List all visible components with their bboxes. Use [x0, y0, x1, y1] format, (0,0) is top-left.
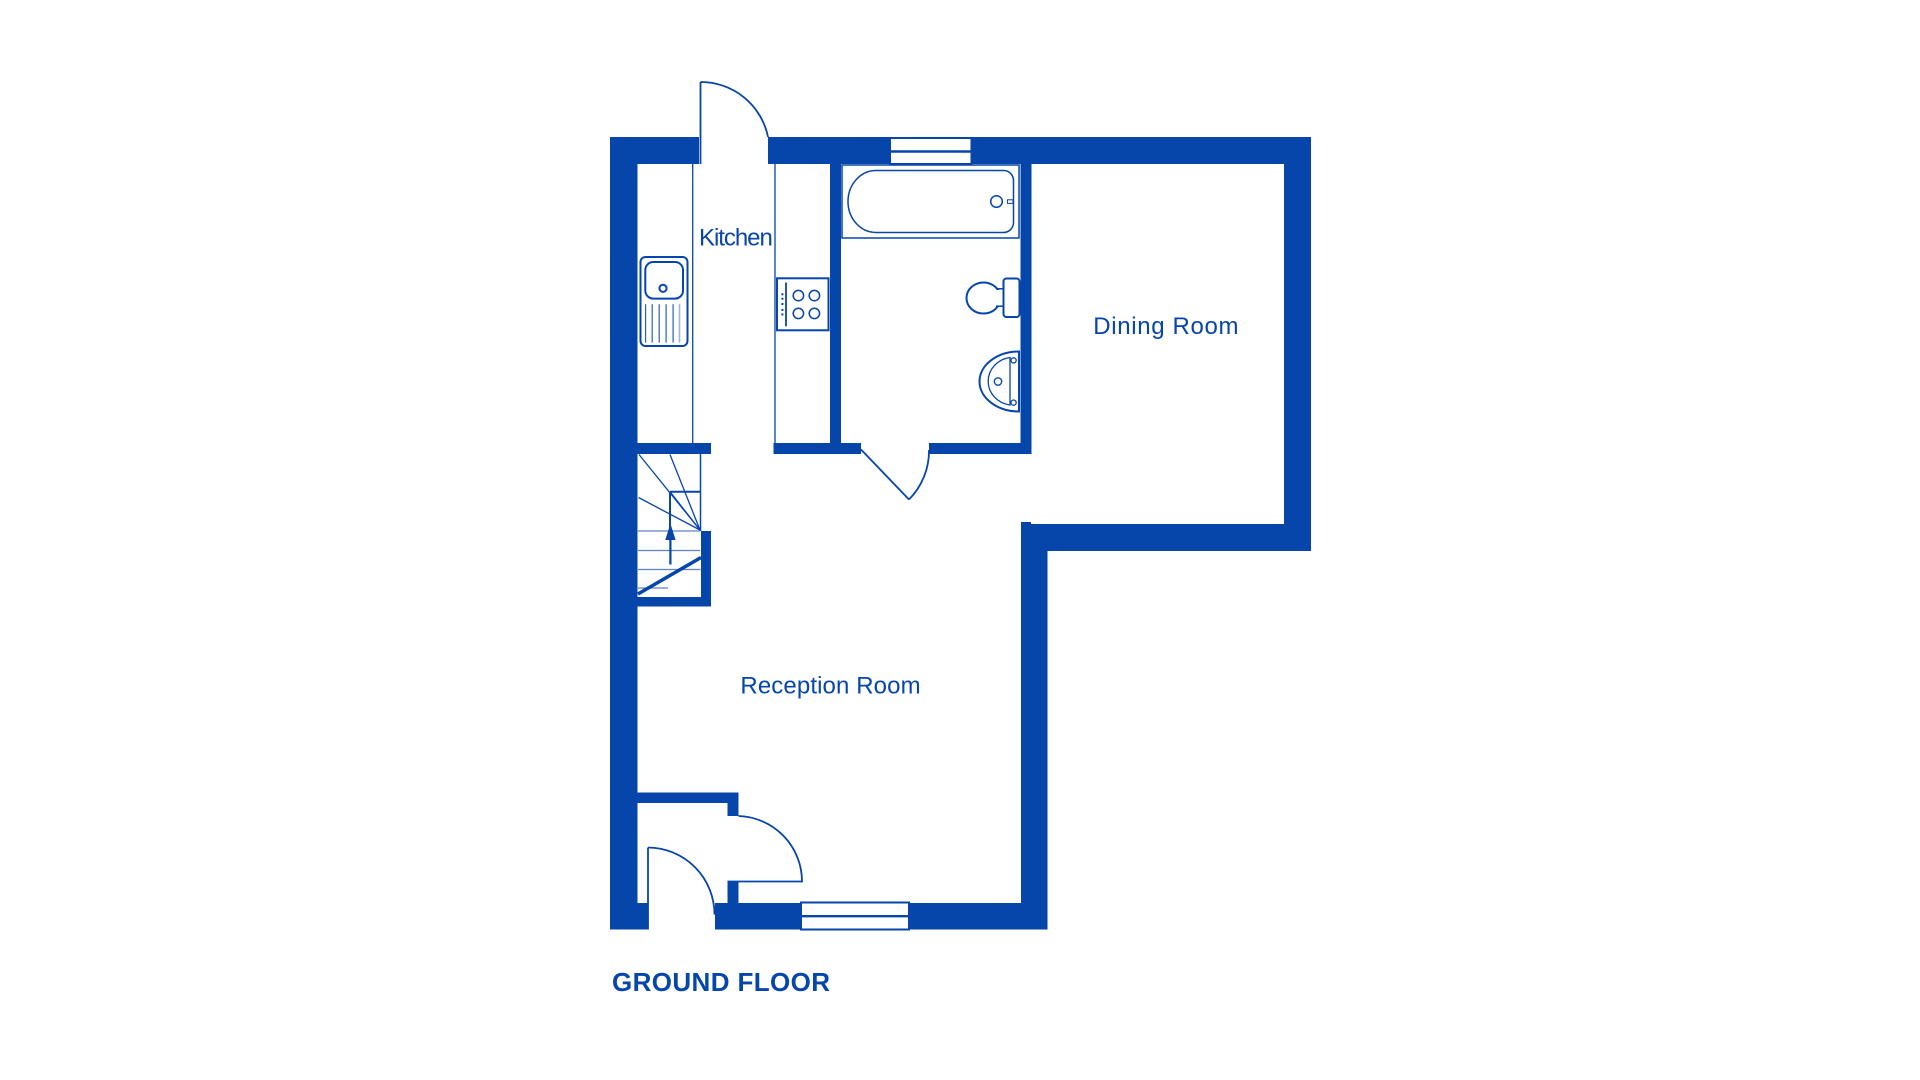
svg-text:GROUND FLOOR: GROUND FLOOR [612, 967, 830, 997]
svg-text:Kitchen: Kitchen [699, 225, 773, 252]
svg-text:Reception Room: Reception Room [740, 673, 920, 700]
svg-text:Dining Room: Dining Room [1093, 313, 1238, 340]
